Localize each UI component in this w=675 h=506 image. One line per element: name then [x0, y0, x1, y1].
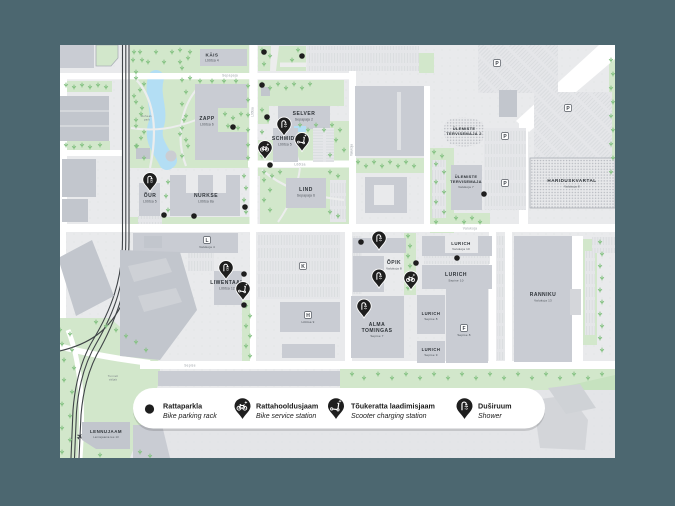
- svg-text:K: K: [301, 264, 305, 270]
- svg-text:Sepise 7: Sepise 7: [370, 334, 383, 338]
- svg-text:Bike service station: Bike service station: [256, 413, 316, 420]
- svg-text:SELVER: SELVER: [293, 111, 316, 117]
- svg-text:Shower: Shower: [478, 413, 502, 420]
- svg-text:RANNIKU: RANNIKU: [530, 292, 557, 298]
- svg-text:LURICH: LURICH: [451, 241, 471, 246]
- svg-text:Sepapaja: Sepapaja: [222, 74, 238, 78]
- svg-text:Scooter charging station: Scooter charging station: [351, 413, 427, 420]
- svg-text:Valukoja 10: Valukoja 10: [452, 247, 470, 251]
- svg-text:LURICH: LURICH: [422, 311, 441, 316]
- svg-text:Sepise 9: Sepise 9: [424, 353, 437, 357]
- svg-text:Sepise 10: Sepise 10: [448, 279, 463, 283]
- svg-text:Sepise 8: Sepise 8: [457, 333, 470, 337]
- svg-text:NURKSE: NURKSE: [194, 193, 218, 199]
- svg-text:Lõõtsa 5: Lõõtsa 5: [143, 200, 157, 204]
- svg-text:LIND: LIND: [299, 187, 313, 193]
- svg-text:KÄIS: KÄIS: [206, 52, 219, 58]
- svg-text:ZAPP: ZAPP: [199, 116, 215, 122]
- svg-text:park: park: [144, 118, 151, 122]
- svg-text:Valukoja: Valukoja: [350, 144, 354, 156]
- svg-text:LURICH: LURICH: [445, 272, 467, 278]
- svg-text:Sepapaja 2: Sepapaja 2: [295, 118, 313, 122]
- svg-text:ÕPIK: ÕPIK: [387, 259, 401, 266]
- svg-text:Lõõtsa 12: Lõõtsa 12: [219, 287, 235, 291]
- svg-text:Rattahooldusjaam: Rattahooldusjaam: [256, 402, 318, 411]
- svg-text:L: L: [205, 238, 208, 244]
- svg-text:Valukoja: Valukoja: [463, 227, 477, 231]
- svg-text:ÕUR: ÕUR: [144, 192, 157, 199]
- svg-text:TERVISEMAJA: TERVISEMAJA: [450, 179, 482, 184]
- svg-text:Valukoja 13: Valukoja 13: [534, 299, 552, 303]
- svg-text:Tõukeratta laadimisjaam: Tõukeratta laadimisjaam: [351, 402, 435, 411]
- svg-text:LENNUJAAM: LENNUJAAM: [90, 429, 122, 434]
- svg-text:Valukoja 8: Valukoja 8: [386, 267, 402, 271]
- svg-text:Sepise 8: Sepise 8: [424, 317, 437, 321]
- svg-text:F: F: [462, 326, 465, 332]
- svg-text:TERVISEMAJA 2: TERVISEMAJA 2: [446, 131, 482, 136]
- svg-text:Lõõtsa: Lõõtsa: [251, 107, 255, 117]
- svg-text:Sepise: Sepise: [184, 364, 196, 368]
- svg-text:Lõõtsa 6: Lõõtsa 6: [200, 123, 214, 127]
- svg-text:väljak: väljak: [109, 378, 118, 382]
- svg-text:Bike parking rack: Bike parking rack: [163, 413, 217, 420]
- svg-text:SCHMIDT: SCHMIDT: [272, 136, 298, 142]
- svg-text:Lõõtsa: Lõõtsa: [294, 163, 305, 167]
- svg-text:Valukoja 4: Valukoja 4: [199, 245, 215, 249]
- svg-text:Lennujaama tee 13: Lennujaama tee 13: [93, 435, 119, 439]
- svg-text:Duširuum: Duširuum: [478, 402, 512, 411]
- svg-text:LURICH: LURICH: [422, 347, 441, 352]
- svg-text:HARIDUSKVARTAL: HARIDUSKVARTAL: [547, 178, 596, 183]
- svg-text:Lõõtsa 8a: Lõõtsa 8a: [198, 200, 214, 204]
- svg-text:Lõõtsa 4: Lõõtsa 4: [205, 59, 219, 63]
- svg-text:Sepapaja 6: Sepapaja 6: [297, 194, 315, 198]
- svg-text:Rattaparkla: Rattaparkla: [163, 402, 203, 411]
- svg-text:Lõõtsa 9: Lõõtsa 9: [301, 320, 314, 324]
- svg-text:H: H: [306, 313, 310, 319]
- svg-text:Lõõtsa 5: Lõõtsa 5: [278, 143, 292, 147]
- svg-text:Valukoja 7: Valukoja 7: [458, 185, 474, 189]
- svg-text:Valukoja 8: Valukoja 8: [564, 185, 580, 189]
